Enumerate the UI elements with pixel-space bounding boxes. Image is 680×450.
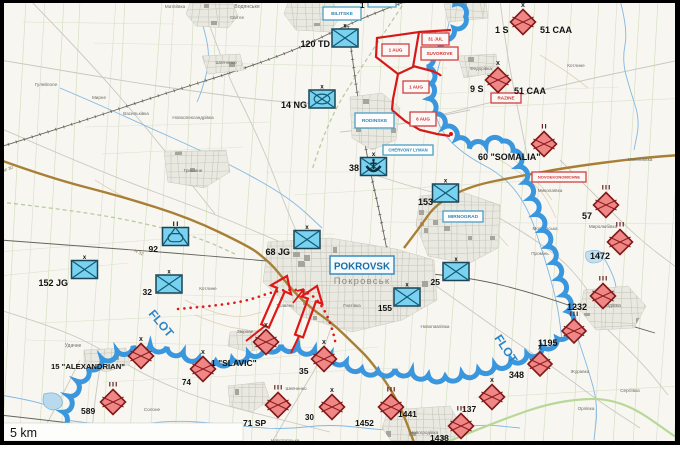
svg-text:31 JUL: 31 JUL (428, 37, 443, 42)
svg-text:1232: 1232 (567, 302, 587, 312)
svg-text:Матвіївка: Матвіївка (165, 4, 186, 9)
svg-text:RAZINE: RAZINE (497, 96, 514, 101)
svg-text:15 "ALEXANDRIAN": 15 "ALEXANDRIAN" (51, 362, 125, 371)
svg-text:Покровськ: Покровськ (334, 276, 390, 287)
svg-text:589: 589 (81, 406, 95, 416)
svg-text:5 km: 5 km (10, 426, 37, 440)
svg-text:Миролюбівка: Миролюбівка (589, 224, 618, 229)
svg-text:Васильківка: Васильківка (123, 111, 149, 116)
svg-text:32: 32 (143, 287, 153, 297)
svg-text:1 AUG: 1 AUG (409, 85, 423, 90)
svg-text:92: 92 (149, 244, 159, 254)
svg-text:x: x (264, 322, 268, 329)
svg-text:Котлине: Котлине (567, 63, 585, 68)
svg-text:1 "SLAVIC": 1 "SLAVIC" (211, 358, 257, 368)
svg-text:51 CAA: 51 CAA (514, 86, 547, 96)
svg-text:Гуляйполе: Гуляйполе (35, 81, 58, 87)
svg-text:Журавка: Журавка (571, 369, 590, 374)
svg-text:153: 153 (418, 197, 433, 207)
svg-text:57: 57 (582, 211, 592, 221)
svg-text:RODINSKE: RODINSKE (362, 118, 388, 124)
svg-text:348: 348 (509, 370, 524, 380)
svg-text:SUVOROVE: SUVOROVE (426, 51, 452, 56)
svg-text:x: x (322, 339, 326, 346)
svg-text:Світле: Світле (230, 15, 244, 20)
svg-text:x: x (538, 345, 542, 352)
svg-text:Миколаївка: Миколаївка (628, 157, 653, 162)
svg-text:Новопавлівка: Новопавлівка (420, 324, 449, 329)
svg-text:60 "SOMALIA": 60 "SOMALIA" (478, 152, 541, 162)
svg-text:71 SP: 71 SP (243, 418, 266, 428)
svg-text:68 JG: 68 JG (265, 247, 290, 257)
svg-text:Водянське: Водянське (234, 4, 260, 10)
svg-text:1472: 1472 (590, 251, 610, 261)
svg-text:x: x (201, 349, 205, 356)
svg-text:1 S: 1 S (495, 25, 509, 35)
svg-text:9 S: 9 S (470, 84, 484, 94)
svg-text:Удачне: Удачне (65, 343, 82, 349)
svg-text:1441: 1441 (398, 409, 417, 419)
svg-text:120 TD: 120 TD (300, 39, 330, 49)
svg-text:Новоолександрівка: Новоолександрівка (172, 115, 214, 120)
svg-text:x: x (139, 336, 143, 343)
svg-text:25: 25 (431, 277, 441, 287)
svg-text:POKROVSK: POKROVSK (334, 262, 390, 273)
svg-text:Солоне: Солоне (144, 407, 161, 412)
svg-text:Сергіївка: Сергіївка (620, 388, 640, 393)
svg-text:30: 30 (305, 413, 314, 422)
svg-text:38: 38 (349, 163, 359, 173)
svg-text:Мирне: Мирне (92, 95, 106, 100)
svg-text:Шевченко: Шевченко (285, 386, 307, 391)
svg-text:51 CAA: 51 CAA (540, 25, 573, 35)
svg-text:Гнатівка: Гнатівка (343, 303, 361, 308)
svg-text:Промінь: Промінь (531, 251, 549, 256)
svg-text:x: x (521, 2, 525, 9)
svg-text:CHERVONY LYMAN: CHERVONY LYMAN (388, 148, 427, 153)
svg-text:x: x (490, 377, 494, 384)
svg-text:x: x (330, 387, 334, 394)
svg-text:NOVOEKONOMICHNE: NOVOEKONOMICHNE (538, 174, 581, 179)
svg-text:Федорівка: Федорівка (470, 66, 492, 71)
svg-text:6 AUG: 6 AUG (416, 117, 430, 122)
svg-text:1452: 1452 (355, 418, 374, 428)
svg-text:BILITSKE: BILITSKE (331, 11, 354, 17)
svg-text:14 NG: 14 NG (281, 100, 307, 110)
svg-text:155: 155 (378, 303, 392, 313)
svg-text:Миколаївка: Миколаївка (538, 188, 563, 193)
svg-text:x: x (496, 60, 500, 67)
svg-text:74: 74 (182, 378, 191, 387)
svg-text:Звірове: Звірове (237, 329, 254, 334)
svg-text:Шевченко: Шевченко (215, 60, 237, 65)
svg-text:152 JG: 152 JG (38, 278, 68, 288)
svg-text:1 AUG: 1 AUG (389, 48, 403, 53)
svg-text:35: 35 (299, 366, 309, 376)
svg-text:Гришине: Гришине (184, 168, 203, 173)
svg-text:Орлівка: Орлівка (578, 406, 595, 411)
svg-text:Котлине: Котлине (199, 286, 217, 291)
svg-text:MIRNOGRAD: MIRNOGRAD (448, 214, 479, 220)
